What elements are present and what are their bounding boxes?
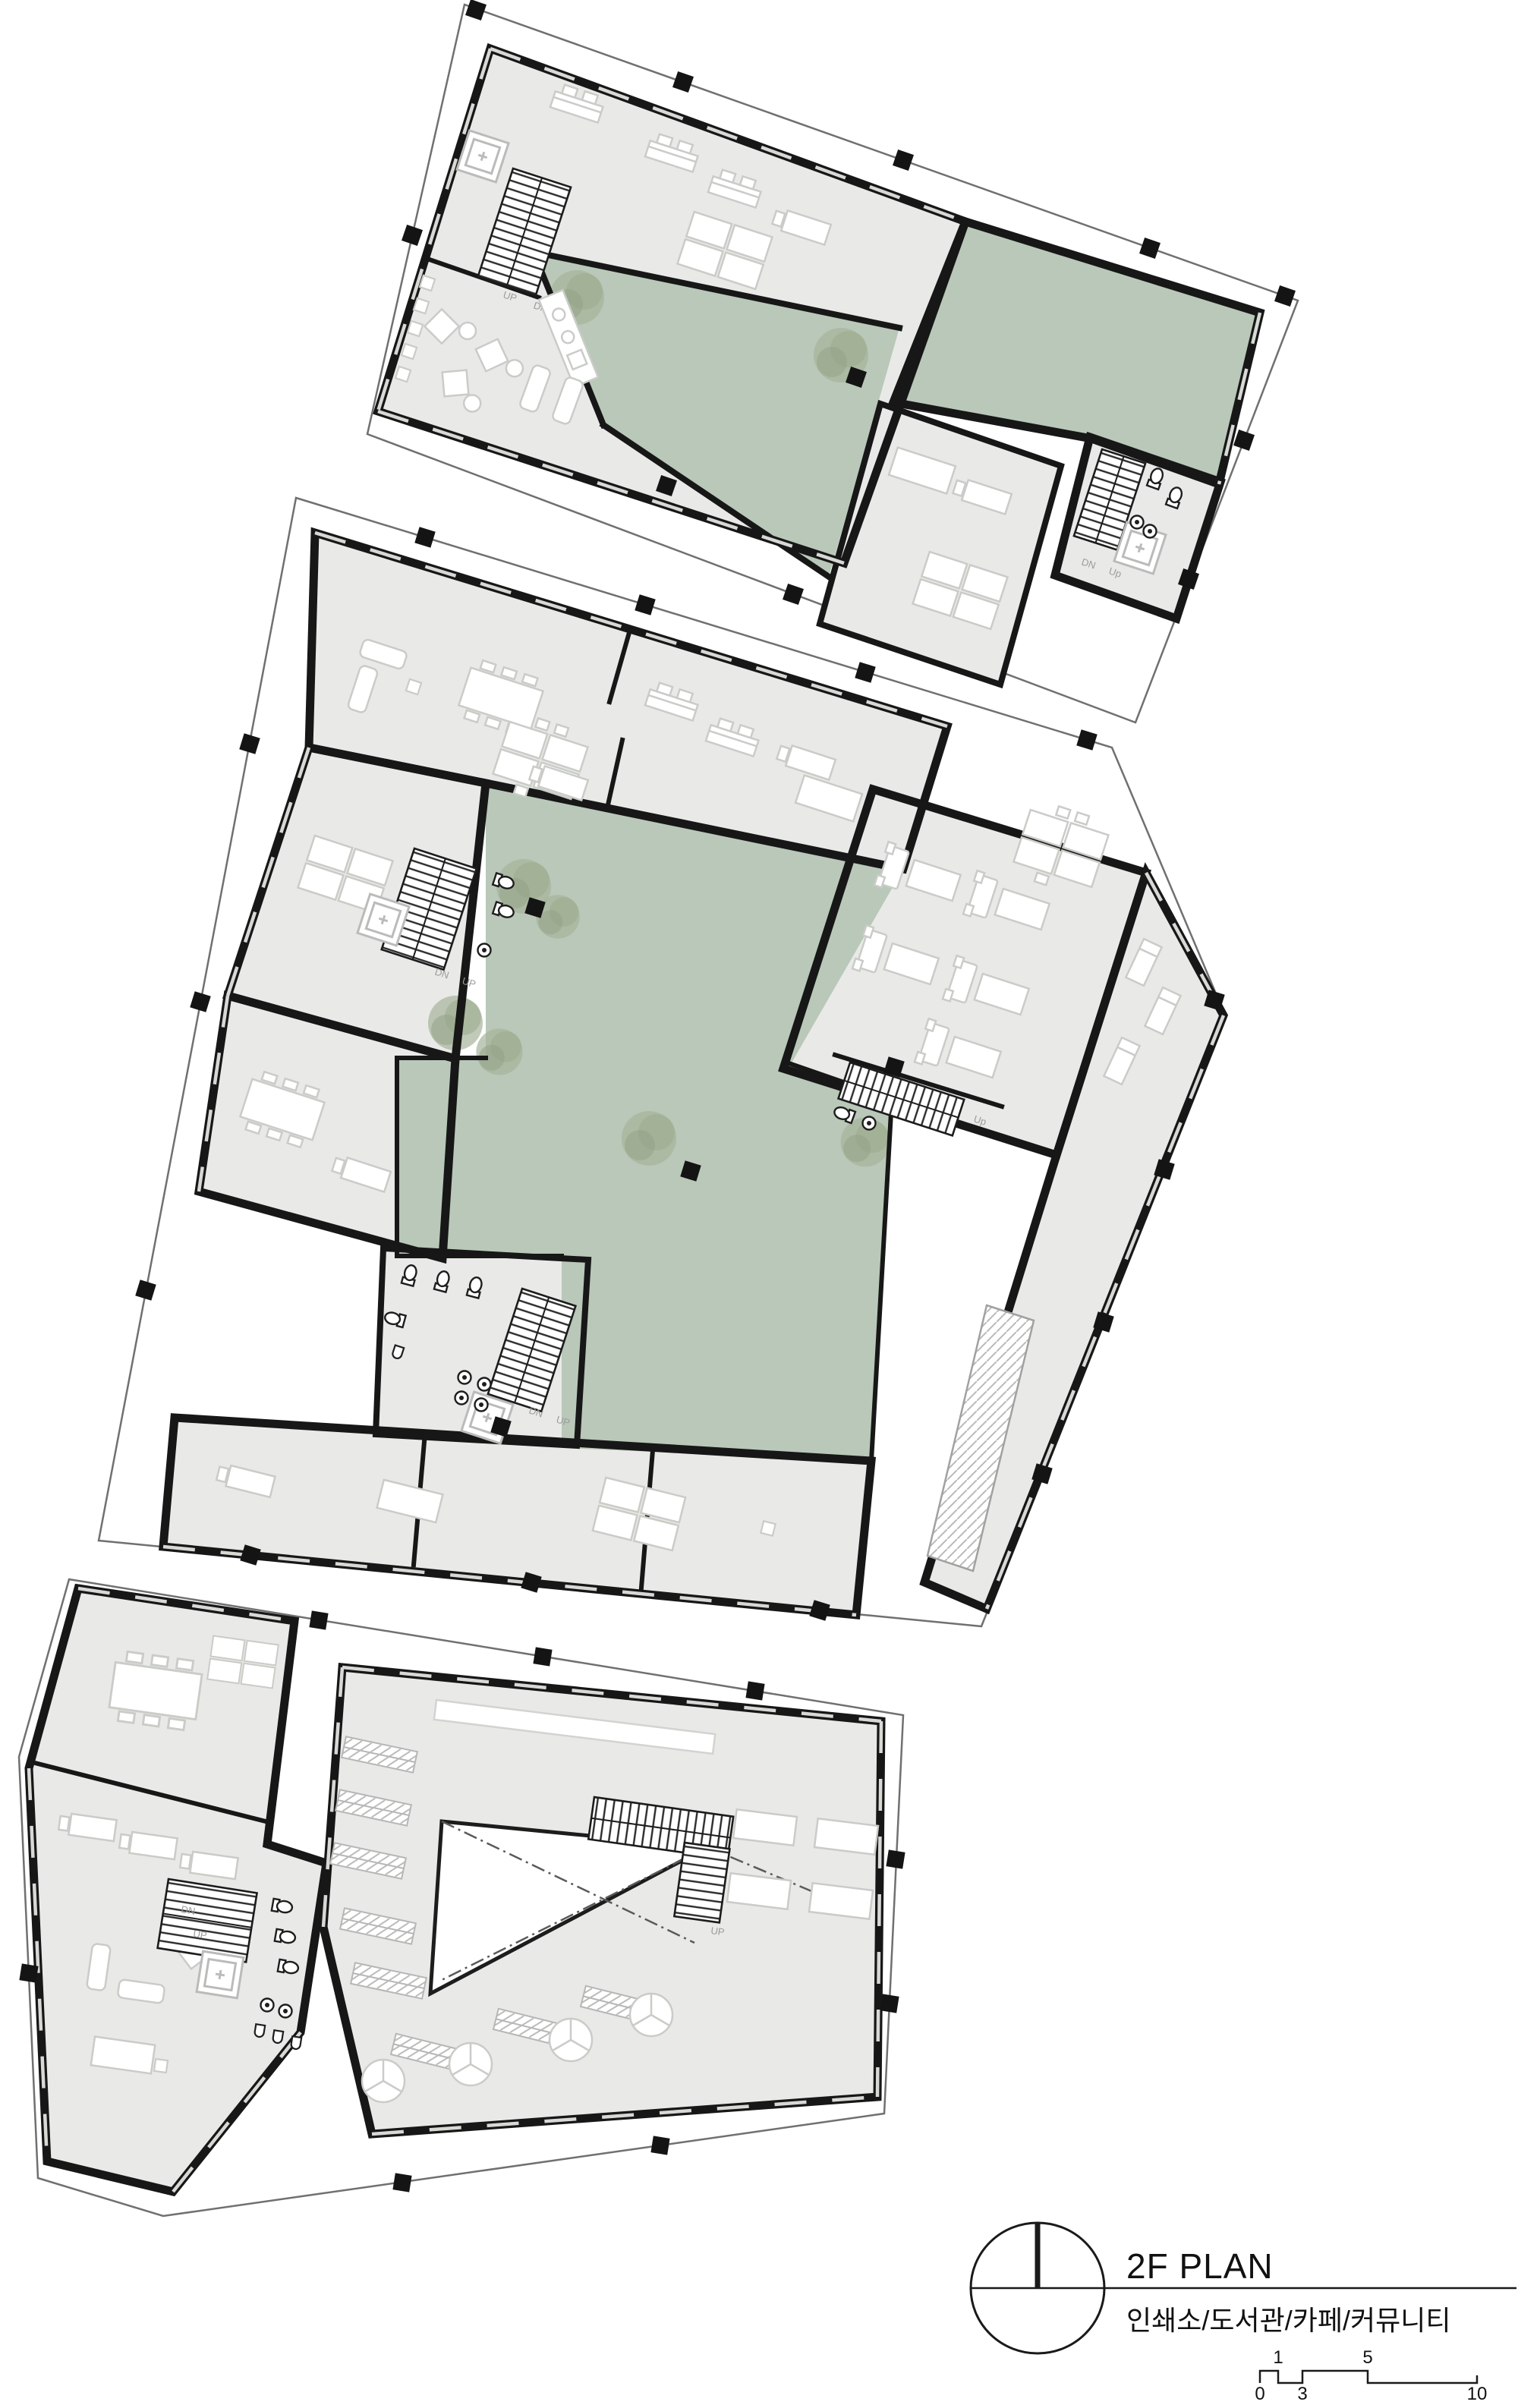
sink-icon [279,2005,292,2018]
stair-label: UP [710,1925,726,1937]
scale-label: 3 [1297,2384,1307,2404]
urinal-icon [272,2030,283,2044]
round-table [449,2043,492,2085]
floor-plan-page: UP DN [0,0,1518,2408]
scale-bar: 1 5 0 3 10 [1255,2347,1487,2404]
elevator-icon [197,1951,244,1998]
sink-icon [1131,516,1144,529]
stair-label: UP [193,1928,208,1941]
sink-icon [458,1371,471,1384]
round-table [630,1994,672,2036]
sink-icon [455,1392,468,1405]
sink-icon [863,1117,876,1130]
title-block: 2F PLAN 인쇄소/도서관/카페/커뮤니티 1 5 0 3 10 [971,2223,1516,2404]
round-table [550,2019,592,2061]
scale-label: 1 [1273,2347,1283,2368]
site-south-block: UP [19,1579,905,2216]
scale-label: 0 [1255,2384,1264,2404]
scale-label: 10 [1467,2384,1488,2404]
plan-title: 2F PLAN [1126,2246,1274,2286]
sink-icon [478,1378,491,1391]
scale-label: 5 [1362,2347,1372,2368]
sink-icon [1144,525,1157,538]
round-table [362,2060,405,2102]
urinal-icon [291,2036,301,2050]
tree-icon [476,1028,522,1075]
urinal-icon [254,2024,265,2038]
sink-icon [261,1999,274,2012]
sink-icon [475,1399,488,1412]
site-middle-block: Up DN UP [99,498,1226,1626]
tree-icon [622,1111,676,1166]
sink-icon [478,944,491,957]
stair-label: DN [181,1903,197,1917]
plan-subtitle: 인쇄소/도서관/카페/커뮤니티 [1126,2305,1450,2336]
floor-plan-canvas: UP DN [0,0,1518,2408]
